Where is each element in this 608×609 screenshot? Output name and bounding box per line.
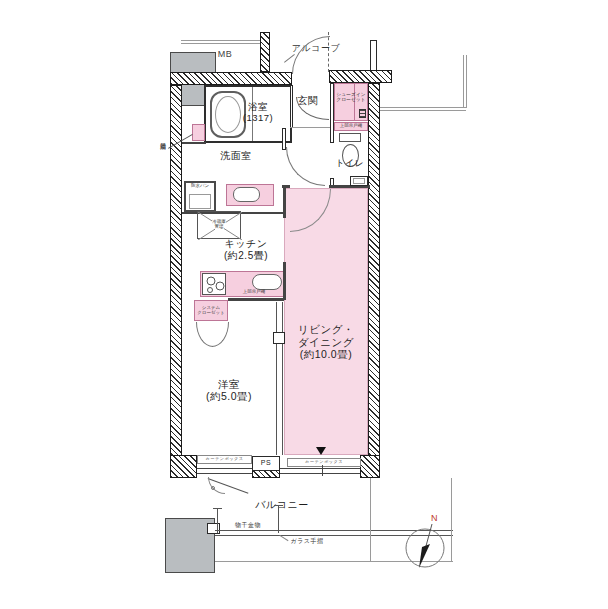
curtain-box-western: カーテンボックス [197, 455, 252, 464]
closet-door-arc-left [196, 322, 213, 347]
mb-boundary-line [181, 43, 263, 44]
wall-top-right [329, 70, 392, 83]
partition-door-track [273, 332, 285, 344]
stove-icon [202, 273, 226, 295]
toilet-tank-icon [339, 133, 361, 142]
wall-bottom-left-stub [170, 455, 197, 478]
shoes-in-closet-label: シューズインクローゼット [334, 90, 368, 104]
window-sash-western [197, 468, 252, 469]
laundry-fitting-label: 物干金物 [228, 521, 268, 530]
system-closet-box: システムクローゼット [194, 300, 228, 321]
western-room-label: 洋室(約5.0畳) [199, 377, 259, 403]
section-marker-triangle [316, 447, 326, 455]
washroom-label: 洗面室 [210, 150, 262, 162]
compass-n-label: N [431, 513, 438, 523]
neighbour-wall-line [463, 55, 464, 108]
wall-kitchen-ld [283, 262, 286, 300]
closet-door-arc-right [212, 322, 229, 347]
wall-stub-top-right [370, 40, 377, 72]
upper-cabinet-strip-kitchen: 上部吊戸棚 [228, 288, 280, 296]
upper-cabinet-strip-toilet: 上部吊戸棚 [334, 122, 368, 131]
laundry-pole-icon [278, 505, 279, 533]
shelf-icon [359, 109, 366, 118]
partition-western-ld [282, 302, 283, 455]
glass-rail-label: ガラス手摺 [286, 537, 328, 546]
entrance-door-arc [292, 36, 330, 74]
waterproof-pan-label: 防水パン [186, 184, 214, 189]
compass: N [402, 510, 450, 574]
mb-label: MB [210, 49, 240, 60]
laundry-pole-icon [274, 505, 283, 506]
fridge-space-label: 冷蔵庫置場 [197, 215, 241, 235]
kitchen-label: キッチン(約2.5畳) [216, 238, 276, 262]
waterproof-pan-inner [189, 194, 211, 209]
washroom-door-arc [286, 147, 325, 186]
wall-kitchen-western [228, 298, 286, 301]
balcony-divider-right [370, 478, 371, 562]
wall-washroom-top-strip [182, 142, 206, 144]
water-heater-box [192, 124, 205, 141]
bathroom-label: 浴室(1317) [237, 99, 279, 125]
wall-top-left [170, 72, 292, 85]
window-sash-ld [280, 468, 360, 469]
wall-ps-stub [252, 470, 280, 478]
laundry-pole-icon [213, 508, 222, 509]
toilet-label: トイレ [330, 158, 370, 169]
washbasin-sink-icon [233, 187, 260, 202]
partition-western-ld [276, 302, 277, 455]
wall-toilet-left [330, 83, 334, 143]
entrance-label: 玄関 [288, 95, 328, 107]
window-sash-center-tick [322, 465, 323, 476]
mb-boundary-line [181, 40, 263, 41]
terrace-door-arc [208, 477, 225, 494]
curtain-box-ld: カーテンボックス [287, 458, 361, 467]
terrace-door-handle [211, 486, 215, 490]
wall-mb-alcove-divider [260, 32, 270, 72]
wall-kitchen-ld [283, 188, 286, 218]
ac-slot-inner [353, 178, 365, 184]
window-sash-ld [280, 473, 360, 474]
neighbour-wall-line [466, 55, 467, 108]
floor-plan: MB アルコーブ PS 浴室(1317) 給湯器 玄関 シューズインクローゼット… [0, 0, 608, 609]
wall-bottom-right-stub [360, 455, 380, 478]
neighbour-wall-line [377, 107, 466, 108]
water-heater-label: 給湯器 [156, 138, 166, 174]
living-dining-label: リビング・ダイニング(約10.0畳) [294, 322, 358, 362]
laundry-pole-icon [217, 508, 218, 533]
balcony-divider-far-right [451, 478, 452, 562]
hall-step-line [290, 127, 330, 128]
window-sash-western [197, 473, 252, 474]
pipe-space-box: PS [252, 456, 280, 471]
wall-right [368, 83, 380, 478]
neighbour-wall-line [377, 110, 466, 111]
